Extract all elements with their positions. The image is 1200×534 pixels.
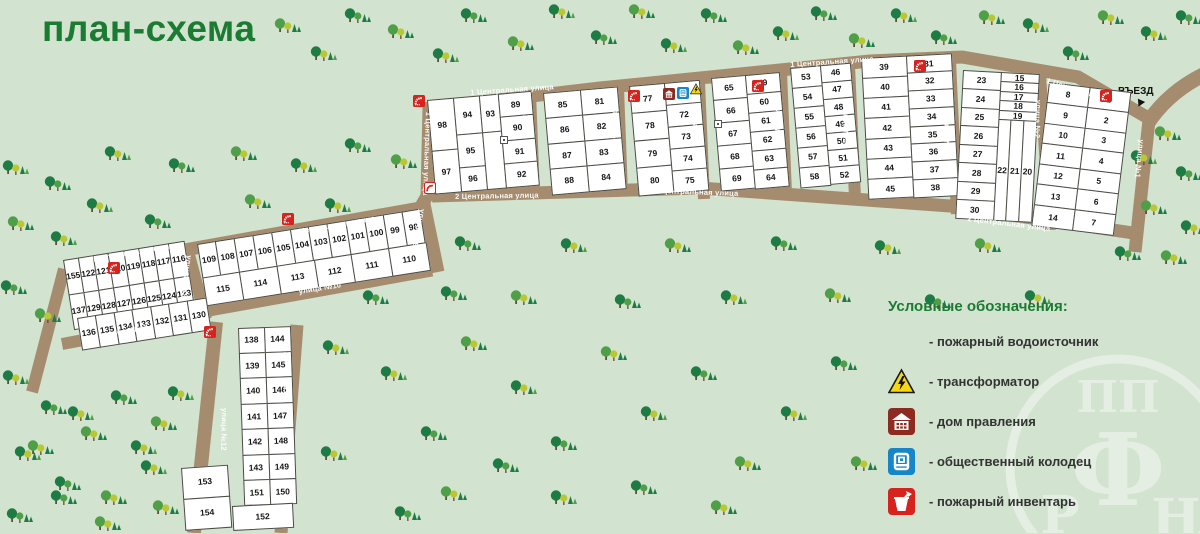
street-label: улица №7 [610,105,620,144]
tree-cluster-icon [40,398,70,418]
plot-number: 98 [437,120,447,129]
plot-number: 86 [560,125,570,134]
tree-cluster-icon [274,16,304,36]
tree-cluster-icon [772,24,802,44]
plot-number: 62 [763,135,773,144]
plot[interactable]: 45 [867,177,914,201]
plot-number: 6 [1093,197,1099,206]
plot[interactable]: 151 [243,479,271,506]
tree-cluster-icon [168,156,198,176]
tree-cluster-icon [734,454,764,474]
plot[interactable]: 115 [202,271,245,306]
plot[interactable]: 84 [586,162,626,192]
plot-number: 139 [245,361,259,370]
plot[interactable]: 140 [239,377,267,404]
plot[interactable]: 64 [753,166,790,189]
plot-number: 87 [562,150,572,159]
plot-number: 96 [468,174,478,183]
plot-number: 53 [801,72,811,81]
plot-number: 152 [255,512,270,521]
tree-cluster-icon [614,292,644,312]
plot-number: 65 [724,83,734,92]
tree-cluster-icon [640,404,670,424]
tree-cluster-icon [34,306,64,326]
street-label: улица №12 [219,408,229,451]
tree-cluster-icon [80,424,110,444]
tree-cluster-icon [344,6,374,26]
plot-number: 10 [1058,131,1068,141]
tree-cluster-icon [690,364,720,384]
tree-cluster-icon [600,344,630,364]
plot-number: 21 [1010,166,1020,175]
plot-number: 39 [879,62,889,71]
tree-cluster-icon [362,288,392,308]
tree-cluster-icon [830,354,860,374]
plot-number: 75 [685,175,695,184]
legend-item-label: - пожарный водоисточник [929,334,1098,349]
plot[interactable]: 92 [504,161,539,188]
tree-cluster-icon [144,212,174,232]
plot-number: 92 [517,170,527,179]
tree-cluster-icon [2,368,32,388]
plot-number: 77 [643,94,653,103]
plot[interactable]: 88 [549,165,589,195]
plot-number: 30 [970,205,980,214]
plot-number: 94 [462,111,472,120]
plot-number: 119 [126,261,141,272]
tree-cluster-icon [460,6,490,26]
street-label: улица №4 [841,105,851,144]
plot-number: 85 [557,99,567,108]
plot[interactable]: 95 [456,132,486,168]
tree-cluster-icon [167,384,197,404]
plot-number: 14 [1048,212,1058,222]
plot-number: 83 [599,147,609,156]
tree-cluster-icon [974,236,1004,256]
plot-number: 66 [726,106,736,115]
tree-cluster-icon [590,28,620,48]
plot-number: 104 [294,239,309,250]
plot-number: 68 [730,151,740,160]
plot-number: 37 [929,165,939,174]
plot-number: 84 [601,172,611,181]
tree-cluster-icon [152,498,182,518]
tree-cluster-icon [978,8,1008,28]
plot[interactable]: 52 [828,165,860,186]
fire-hydrant-icon [413,95,425,107]
tree-cluster-icon [394,504,424,524]
tree-cluster-icon [387,22,417,42]
plot-number: 7 [1091,218,1097,227]
plot[interactable]: 154 [183,495,232,530]
tree-cluster-icon [507,34,537,54]
plot[interactable]: 114 [239,265,282,300]
tree-cluster-icon [344,136,374,156]
tree-cluster-icon [1175,164,1200,184]
plot-number: 26 [974,131,984,140]
plot-number: 74 [683,153,693,162]
tree-cluster-icon [310,44,340,64]
tree-cluster-icon [150,414,180,434]
plot-number: 122 [81,268,96,279]
plot-number: 136 [81,327,96,338]
plot-number: 140 [246,387,260,396]
plot[interactable]: 148 [267,427,295,454]
plot-number: 38 [930,183,940,192]
fire-hydrant-icon [108,262,120,274]
plot-number: 41 [881,103,891,112]
fire-hydrant-icon [204,326,216,338]
plot-number: 124 [161,291,176,302]
plot-number: 81 [594,96,604,105]
plot-number: 45 [885,184,895,193]
plot-number: 148 [274,436,288,445]
plot-number: 154 [200,508,215,517]
plot-number: 24 [976,94,986,103]
plot-number: 142 [248,437,262,446]
plot-number: 34 [927,112,937,121]
tree-cluster-icon [94,514,124,534]
plot-number: 95 [465,146,475,155]
plot-number: 82 [597,122,607,131]
fire-hydrant-icon [628,90,640,102]
tree-cluster-icon [510,288,540,308]
plot-number: 99 [390,225,401,235]
plot-number: 141 [247,412,261,421]
street-label: улица №2 [1033,100,1043,139]
tree-cluster-icon [770,234,800,254]
plot-number: 110 [402,254,417,265]
plot-number: 89 [510,99,520,108]
tree-cluster-icon [324,196,354,216]
plot-number: 9 [1063,111,1069,120]
tree-cluster-icon [1022,16,1052,36]
plot-number: 132 [154,315,169,326]
plot-number: 150 [276,487,290,496]
fire-source-icon [888,328,915,355]
well-marker-icon [714,120,726,132]
plot[interactable]: 78 [631,110,669,142]
plot[interactable]: 138 [237,327,265,354]
plot-number: 44 [884,164,894,173]
legend-item-label: - пожарный инвентарь [929,494,1076,509]
plot-number: 144 [270,335,284,344]
legend-item-label: - дом правления [929,414,1036,429]
legend-item: - дом правления [888,401,1178,441]
plot-number: 109 [201,254,216,265]
tree-cluster-icon [874,238,904,258]
plot-number: 63 [764,154,774,163]
plot-subrow: 222120 [993,119,1036,221]
plot[interactable]: 111 [351,248,394,283]
plot-number: 108 [220,251,235,262]
plot[interactable]: 142 [241,428,269,455]
tree-cluster-icon [50,488,80,508]
fire-hydrant-outline-icon [424,182,436,194]
legend-items: - пожарный водоисточник - трансформатор … [888,321,1178,521]
public-well-icon [677,87,689,99]
plot-number: 4 [1098,156,1104,165]
tree-cluster-icon [550,434,580,454]
tree-cluster-icon [290,156,320,176]
tree-cluster-icon [732,38,762,58]
tree-cluster-icon [454,234,484,254]
tree-cluster-icon [850,454,880,474]
plot-number: 12 [1053,172,1063,182]
plot-number: 102 [331,233,346,244]
plot[interactable]: 150 [269,478,297,505]
tree-cluster-icon [67,404,97,424]
plot-number: 33 [926,94,936,103]
plot-number: 61 [761,116,771,125]
plot-number: 114 [253,277,268,288]
plot-number: 11 [1056,151,1066,161]
tree-cluster-icon [320,444,350,464]
plot-number: 126 [131,296,146,307]
plot-number: 67 [728,129,738,138]
plot-number: 88 [564,176,574,185]
plot-number: 128 [101,301,116,312]
legend-item: - пожарный инвентарь [888,481,1178,521]
tree-cluster-icon [27,438,57,458]
plot-number: 20 [1023,167,1033,176]
road-segment [1147,74,1200,124]
tree-cluster-icon [492,456,522,476]
plot-row: 154 [183,496,231,530]
plot-number: 52 [839,170,849,179]
plot[interactable]: 149 [268,453,296,480]
plot-number: 22 [997,165,1007,174]
plot-number: 23 [977,76,987,85]
tree-cluster-icon [230,144,260,164]
fire-hydrant-icon [914,60,926,72]
plot-number: 78 [645,121,655,130]
board-house-icon [888,408,915,435]
plot-number: 69 [732,174,742,183]
page-title: план-схема [42,8,255,50]
tree-cluster-icon [6,506,36,526]
plot-row: 153 [181,465,229,499]
tree-cluster-icon [390,152,420,172]
tree-cluster-icon [548,2,578,22]
plot-block: 153154 [181,465,231,530]
plot-number: 79 [647,148,657,157]
plot-number: 112 [327,266,342,277]
plot-number: 35 [928,130,938,139]
board-house-icon [663,88,675,100]
plot-number: 5 [1096,177,1102,186]
tree-cluster-icon [824,286,854,306]
plot[interactable]: 152 [231,502,293,530]
plot-number: 106 [257,245,272,256]
tree-cluster-icon [1114,244,1144,264]
plot-number: 56 [806,132,816,141]
tree-cluster-icon [780,404,810,424]
tree-cluster-icon [0,278,30,298]
plot-number: 151 [250,488,264,497]
tree-cluster-icon [100,488,130,508]
plot-number: 101 [350,230,365,241]
tree-cluster-icon [1140,198,1170,218]
tree-cluster-icon [432,46,462,66]
legend-item: - трансформатор [888,361,1178,401]
plot-number: 13 [1050,192,1060,202]
plot-number: 143 [249,463,263,472]
plot-number: 147 [273,411,287,420]
tree-cluster-icon [810,4,840,24]
tree-cluster-icon [460,334,490,354]
plot-column: 39404142434445 [861,56,913,200]
tree-cluster-icon [720,288,750,308]
plot-number: 100 [369,228,384,239]
plot-number: 103 [313,236,328,247]
tree-cluster-icon [510,378,540,398]
plot-number: 58 [809,172,819,181]
plot-number: 47 [832,85,842,94]
legend: Условные обозначения: - пожарный водоист… [888,298,1178,521]
street-label: улица №6 [691,105,701,144]
plot-number: 25 [975,113,985,122]
plot-number: 153 [198,477,213,486]
plot-number: 127 [116,298,131,309]
street-label: улица №3 [942,115,952,154]
tree-cluster-icon [1097,8,1127,28]
plot[interactable]: 147 [266,402,294,429]
tree-cluster-icon [1160,248,1190,268]
plot-number: 2 [1103,116,1109,125]
plot-number: 29 [971,187,981,196]
plot-number: 97 [441,167,451,176]
street-label: 2 Центральная улица [455,191,539,201]
fire-hydrant-icon [282,213,294,225]
plot[interactable]: 139 [238,352,266,379]
tree-cluster-icon [550,488,580,508]
tree-cluster-icon [628,2,658,22]
plot[interactable]: 141 [240,403,268,430]
tree-cluster-icon [1175,8,1200,28]
plot-number: 73 [681,132,691,141]
plot-number: 118 [141,259,156,270]
plot-number: 46 [830,68,840,77]
tree-cluster-icon [1154,124,1184,144]
legend-item-label: - общественный колодец [929,454,1091,469]
tree-cluster-icon [890,6,920,26]
plot[interactable]: 110 [388,242,431,277]
plot-number: 107 [238,248,253,259]
plot-number: 51 [838,153,848,162]
plot-number: 55 [804,112,814,121]
tree-cluster-icon [1180,218,1200,238]
street-label: улица №8 [522,115,532,154]
plot-number: 117 [156,257,171,268]
plot[interactable]: 143 [242,454,270,481]
tree-cluster-icon [700,6,730,26]
site-plan-map: план-схема ВЪЕЗД Ф Р Н ПП Условные обозн… [0,0,1200,533]
tree-cluster-icon [630,478,660,498]
legend-item: - пожарный водоисточник [888,321,1178,361]
plot-number: 137 [71,305,86,316]
plot[interactable]: 58 [798,164,831,188]
plot-number: 113 [290,271,305,282]
legend-item: - общественный колодец [888,441,1178,481]
plot[interactable]: 38 [912,177,959,198]
tree-cluster-icon [140,458,170,478]
tree-cluster-icon [420,424,450,444]
plot[interactable]: 144 [263,326,291,353]
plot-number: 129 [86,303,101,314]
tree-cluster-icon [1140,24,1170,44]
plot-row: 152 [232,503,293,530]
plot-number: 42 [882,123,892,132]
plot-number: 80 [650,176,660,185]
transformer-icon [690,83,702,95]
tree-cluster-icon [440,284,470,304]
tree-cluster-icon [130,438,160,458]
plot-number: 54 [802,92,812,101]
tree-cluster-icon [1024,288,1054,308]
tree-cluster-icon [104,144,134,164]
plot-number: 90 [513,123,523,132]
plot-number: 125 [146,293,161,304]
tree-cluster-icon [848,31,878,51]
tree-cluster-icon [660,36,690,56]
fire-hydrant-icon [752,80,764,92]
tree-cluster-icon [924,292,954,312]
transformer-icon [888,368,915,395]
tree-cluster-icon [44,174,74,194]
tree-cluster-icon [7,214,37,234]
plot-block: 23242526272829301516171819222120 [955,70,1039,222]
tree-cluster-icon [2,158,32,178]
plot-number: 32 [925,77,935,86]
tree-cluster-icon [440,484,470,504]
road-segment [32,269,64,392]
plot-number: 155 [66,271,81,282]
plot-number: 40 [880,83,890,92]
plot-number: 138 [244,336,258,345]
plot-column: 1516171819222120 [993,72,1039,222]
plot-number: 27 [973,150,983,159]
legend-item-label: - трансформатор [929,374,1039,389]
tree-cluster-icon [930,28,960,48]
well-marker-icon [500,136,512,148]
plot-number: 115 [216,283,231,294]
plot[interactable]: 153 [180,464,229,499]
plot-number: 28 [972,168,982,177]
tree-cluster-icon [560,236,590,256]
plot-number: 3 [1101,136,1107,145]
tree-cluster-icon [380,364,410,384]
plot-number: 36 [929,147,939,156]
tree-cluster-icon [1062,44,1092,64]
plot-block: 152 [232,503,293,530]
plot-number: 72 [679,110,689,119]
tree-cluster-icon [244,192,274,212]
public-well-icon [888,448,915,475]
plot-number: 111 [365,260,379,270]
plot[interactable]: 96 [458,165,487,192]
plot[interactable]: 79 [633,137,671,169]
plot-number: 131 [173,313,188,324]
plot-number: 105 [276,242,291,253]
fire-inventory-icon [888,488,915,515]
plot-number: 149 [275,462,289,471]
fire-hydrant-icon [1100,90,1112,102]
plot-number: 64 [766,173,776,182]
plot-number: 57 [808,152,818,161]
tree-cluster-icon [110,388,140,408]
tree-cluster-icon [710,498,740,518]
